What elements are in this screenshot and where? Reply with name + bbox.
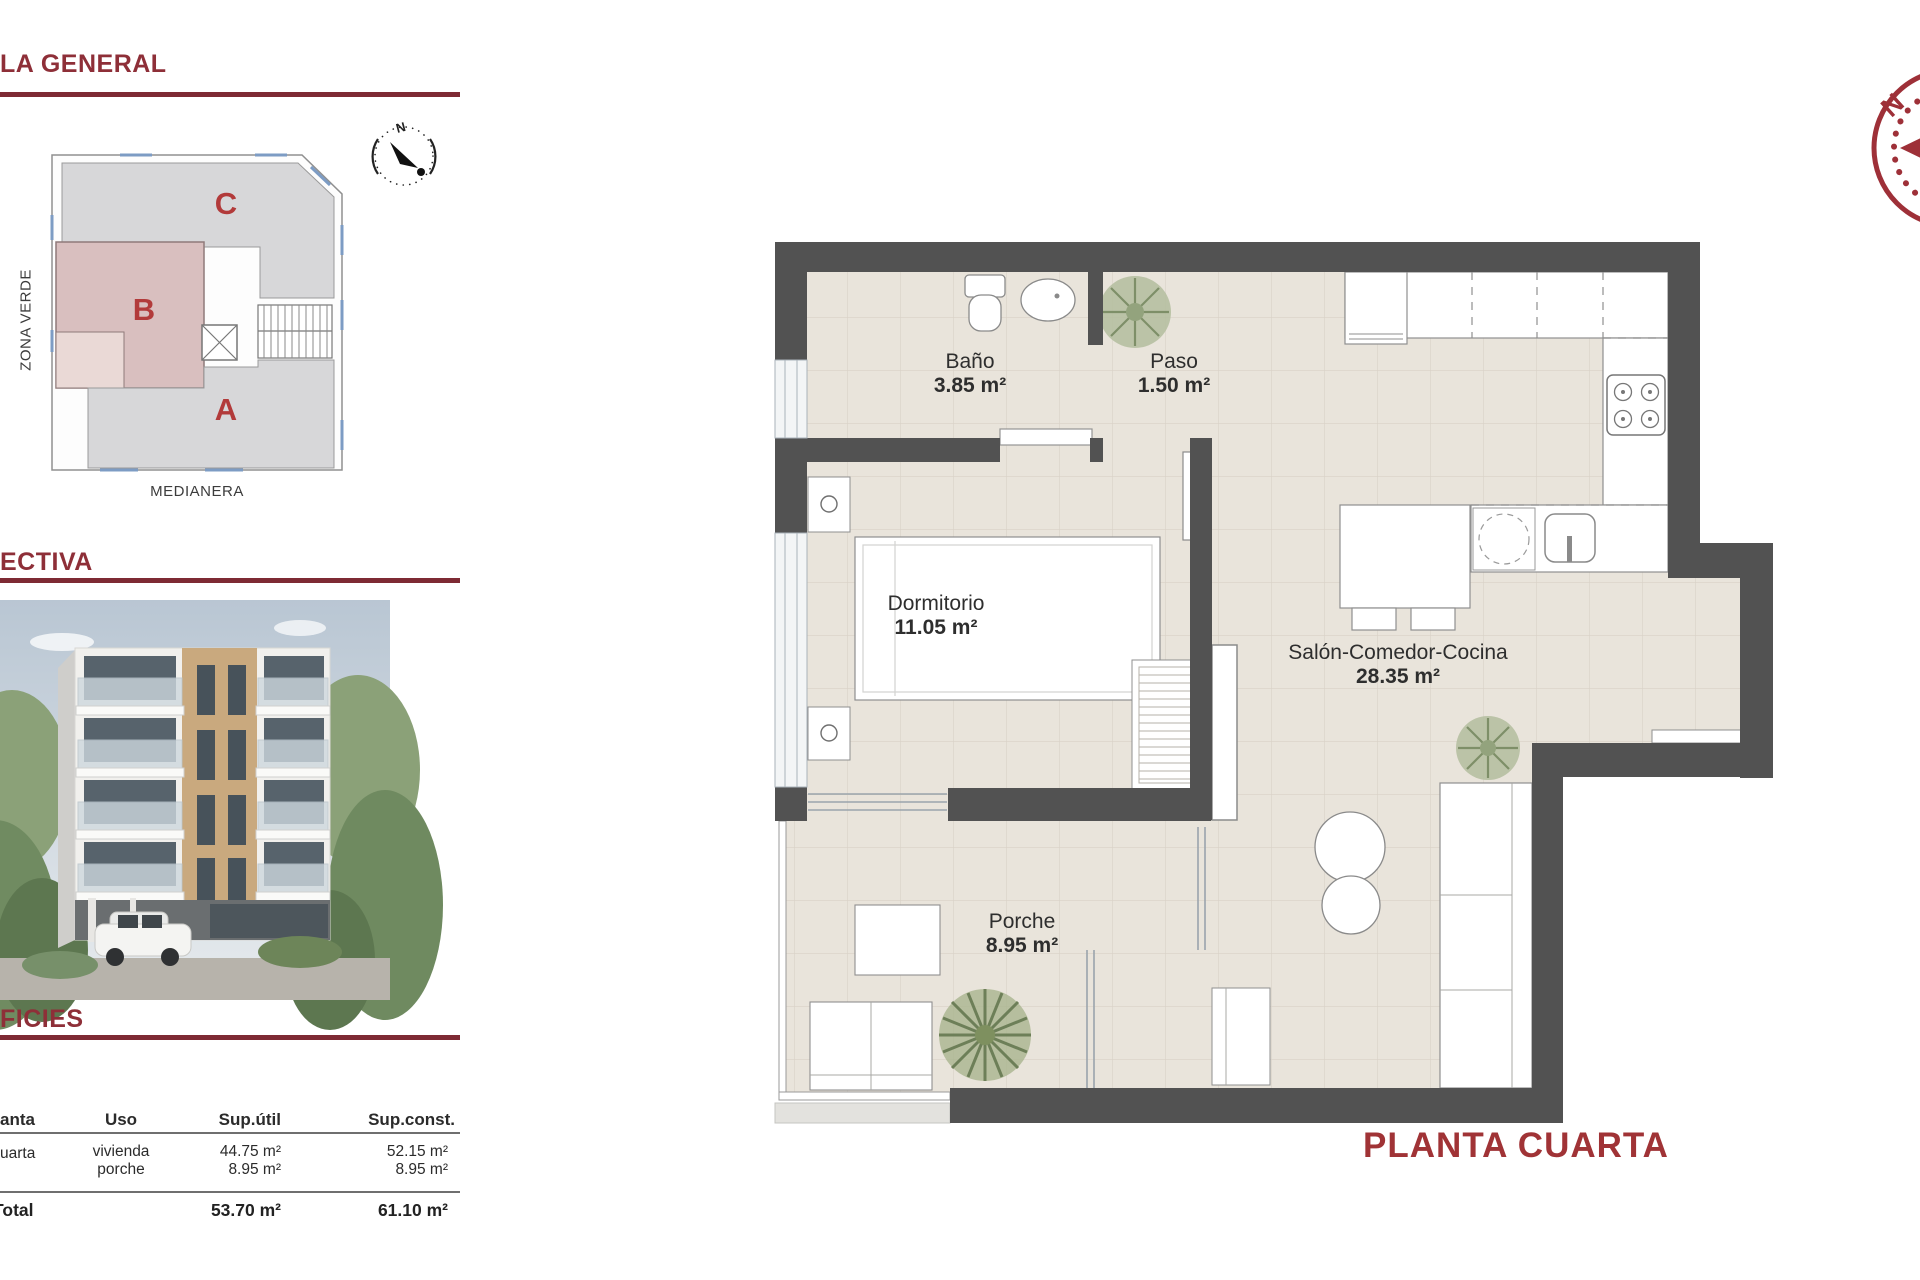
hob-icon [1607, 375, 1665, 435]
site-plan-diagram [52, 127, 435, 470]
room-label-paso: Paso 1.50 m² [1138, 350, 1210, 398]
room-label-salon: Salón-Comedor-Cocina 28.35 m² [1288, 641, 1507, 689]
room-name: Paso [1138, 350, 1210, 374]
zone-b-label: B [133, 292, 155, 328]
table-cell-const-2: 8.95 m² [348, 1161, 448, 1179]
washbasin-icon [1021, 279, 1075, 321]
room-area: 3.85 m² [934, 374, 1006, 398]
table-col-sup-const: Sup.const. [330, 1110, 455, 1130]
section-rule [0, 578, 460, 583]
zona-verde-label: ZONA VERDE [18, 269, 35, 371]
palm-porch [939, 989, 1031, 1081]
room-area: 28.35 m² [1288, 665, 1507, 689]
building-render [0, 600, 443, 1030]
table-total-const: 61.10 m² [348, 1200, 448, 1221]
porch-sofa [810, 1002, 932, 1090]
sink-icon [1545, 514, 1595, 562]
north-compass-icon [1874, 70, 1920, 226]
table-total-util: 53.70 m² [181, 1200, 281, 1221]
window-bands [775, 360, 807, 787]
table-total-label: Total [0, 1200, 34, 1221]
table-col-uso: Uso [94, 1110, 148, 1130]
section-title-planta-general: LA GENERAL [0, 50, 167, 79]
floor-plan [775, 242, 1773, 1123]
site-compass-icon [373, 127, 436, 185]
room-name: Baño [934, 350, 1006, 374]
zone-a-label: A [215, 392, 237, 428]
medianera-label: MEDIANERA [150, 483, 244, 500]
room-label-bano: Baño 3.85 m² [934, 350, 1006, 398]
tv-bench [1652, 730, 1750, 743]
table-cell-uso-2: porche [80, 1161, 162, 1179]
room-name: Dormitorio [888, 592, 985, 616]
plant-salon [1456, 716, 1520, 780]
room-area: 11.05 m² [888, 616, 985, 640]
section-title-superficies: FICIES [0, 1005, 84, 1034]
plan-title: PLANTA CUARTA [1363, 1126, 1669, 1166]
room-label-dormitorio: Dormitorio 11.05 m² [888, 592, 985, 640]
washer-icon [1473, 508, 1535, 570]
table-cell-const-1: 52.15 m² [348, 1143, 448, 1161]
stairs-icon [258, 305, 332, 358]
elevator-icon [202, 325, 237, 360]
table-cell-util-2: 8.95 m² [181, 1161, 281, 1179]
toilet-icon [965, 275, 1005, 331]
porch-table [855, 905, 940, 975]
bathroom-sliding-door [1000, 429, 1092, 445]
plant-paso [1099, 276, 1171, 348]
floor-plan-brochure-page: LA GENERAL ECTIVA FICIES C B A ZONA VERD… [0, 0, 1920, 1280]
zone-c-label: C [215, 186, 237, 222]
room-label-porche: Porche 8.95 m² [986, 910, 1058, 958]
table-col-sup-util: Sup.útil [181, 1110, 281, 1130]
room-name: Porche [986, 910, 1058, 934]
section-rule [0, 1035, 460, 1040]
table-cell-planta: uarta [0, 1145, 35, 1163]
room-area: 1.50 m² [1138, 374, 1210, 398]
armchair [1212, 988, 1270, 1085]
graphics-canvas [0, 0, 1920, 1280]
section-rule [0, 92, 460, 97]
table-divider [0, 1191, 460, 1193]
table-divider [0, 1132, 460, 1134]
sofa [1440, 783, 1532, 1088]
room-area: 8.95 m² [986, 934, 1058, 958]
section-title-perspectiva: ECTIVA [0, 548, 93, 577]
table-col-planta: anta [0, 1110, 35, 1130]
table-cell-util-1: 44.75 m² [181, 1143, 281, 1161]
sliding-door-panel [1212, 645, 1237, 820]
table-cell-uso-1: vivienda [80, 1143, 162, 1161]
room-name: Salón-Comedor-Cocina [1288, 641, 1507, 665]
